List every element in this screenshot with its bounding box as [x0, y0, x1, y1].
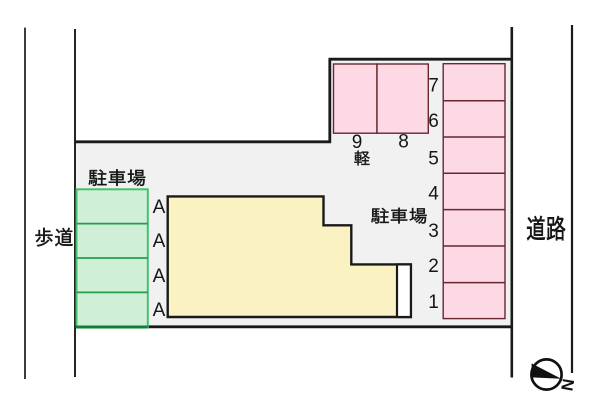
svg-text:1: 1	[428, 292, 439, 313]
svg-text:A: A	[153, 300, 166, 321]
svg-text:A: A	[153, 231, 166, 252]
svg-text:2: 2	[428, 256, 439, 277]
svg-text:7: 7	[428, 75, 439, 96]
svg-text:3: 3	[428, 221, 439, 242]
svg-text:A: A	[153, 266, 166, 287]
svg-text:A: A	[153, 197, 166, 218]
svg-text:5: 5	[428, 148, 439, 169]
svg-text:4: 4	[428, 184, 439, 205]
svg-text:9: 9	[352, 132, 363, 153]
svg-text:8: 8	[398, 131, 409, 152]
svg-text:6: 6	[428, 111, 439, 132]
